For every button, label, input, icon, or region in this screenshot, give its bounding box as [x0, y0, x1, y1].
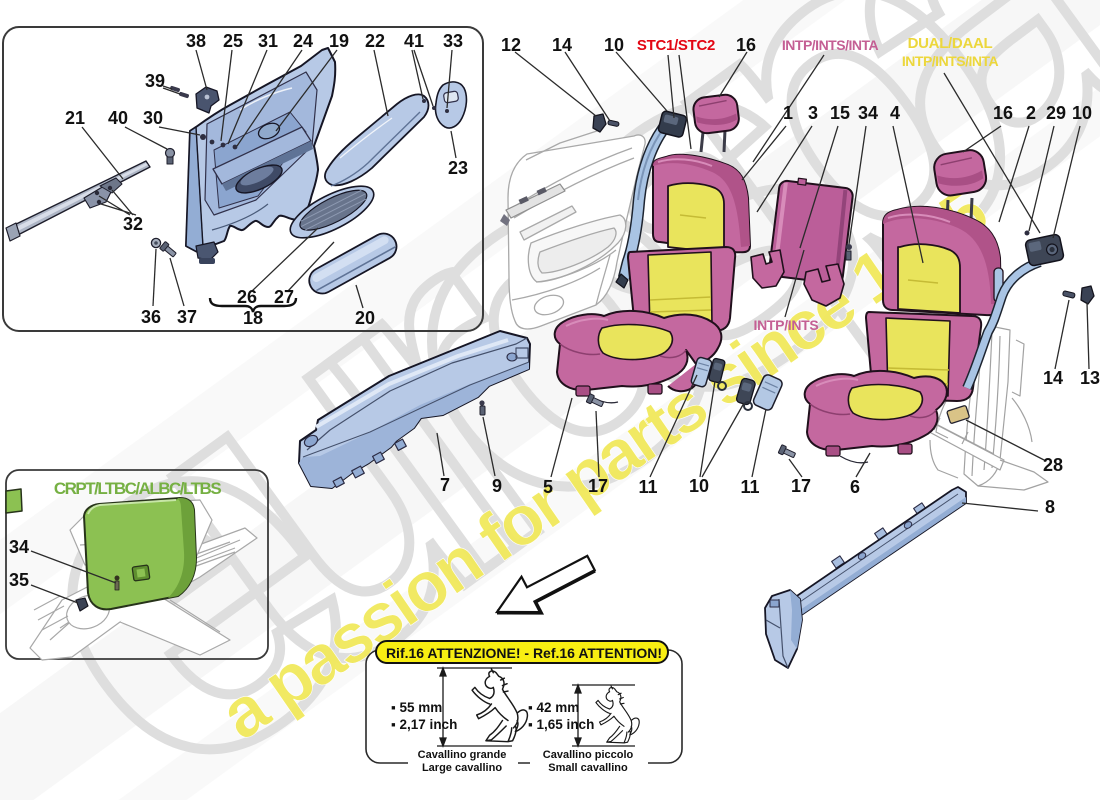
svg-text:17: 17: [791, 476, 811, 496]
svg-text:Small cavallino: Small cavallino: [548, 762, 628, 774]
svg-text:▪ 2,17 inch: ▪ 2,17 inch: [391, 717, 457, 732]
svg-text:17: 17: [588, 476, 608, 496]
svg-text:36: 36: [141, 307, 161, 327]
svg-text:1: 1: [783, 103, 793, 123]
svg-text:STC1/STC2: STC1/STC2: [637, 37, 715, 54]
svg-text:14: 14: [552, 35, 572, 55]
svg-text:41: 41: [404, 31, 424, 51]
svg-text:Cavallino grande: Cavallino grande: [418, 749, 507, 761]
svg-text:23: 23: [448, 158, 468, 178]
svg-text:24: 24: [293, 31, 313, 51]
svg-text:6: 6: [850, 477, 860, 497]
svg-text:39: 39: [145, 71, 165, 91]
svg-text:3: 3: [808, 103, 818, 123]
svg-text:31: 31: [258, 31, 278, 51]
svg-text:20: 20: [355, 308, 375, 328]
svg-text:INTP/INTS/INTA: INTP/INTS/INTA: [782, 37, 879, 53]
svg-text:19: 19: [329, 31, 349, 51]
svg-text:10: 10: [689, 476, 709, 496]
svg-text:▪ 42 mm: ▪ 42 mm: [528, 700, 579, 715]
svg-text:5: 5: [543, 477, 553, 497]
svg-text:34: 34: [858, 103, 878, 123]
svg-text:13: 13: [1080, 368, 1100, 388]
svg-text:▪ 55 mm: ▪ 55 mm: [391, 700, 442, 715]
svg-text:16: 16: [736, 35, 756, 55]
svg-text:9: 9: [492, 476, 502, 496]
svg-text:11: 11: [638, 477, 657, 497]
svg-text:16: 16: [993, 103, 1013, 123]
svg-text:25: 25: [223, 31, 243, 51]
svg-text:29: 29: [1046, 103, 1066, 123]
svg-text:8: 8: [1045, 497, 1055, 517]
svg-text:CRPT/LTBC/ALBC/LTBS: CRPT/LTBC/ALBC/LTBS: [54, 479, 222, 498]
svg-text:INTP/INTS/INTA: INTP/INTS/INTA: [902, 53, 999, 69]
svg-text:30: 30: [143, 108, 163, 128]
svg-text:27: 27: [274, 287, 294, 307]
svg-text:7: 7: [440, 475, 450, 495]
svg-text:34: 34: [9, 537, 29, 557]
svg-text:21: 21: [65, 108, 85, 128]
svg-text:12: 12: [501, 35, 521, 55]
svg-text:11: 11: [740, 477, 759, 497]
svg-text:40: 40: [108, 108, 128, 128]
svg-text:32: 32: [123, 214, 143, 234]
svg-text:DUAL/DAAL: DUAL/DAAL: [908, 35, 993, 52]
svg-text:15: 15: [830, 103, 850, 123]
svg-text:38: 38: [186, 31, 206, 51]
svg-text:10: 10: [1072, 103, 1092, 123]
svg-text:33: 33: [443, 31, 463, 51]
svg-text:28: 28: [1043, 455, 1063, 475]
svg-text:22: 22: [365, 31, 385, 51]
svg-text:37: 37: [177, 307, 197, 327]
svg-text:26: 26: [237, 287, 257, 307]
svg-text:2: 2: [1026, 103, 1036, 123]
svg-text:35: 35: [9, 570, 29, 590]
svg-text:18: 18: [243, 308, 263, 328]
svg-text:Rif.16 ATTENZIONE! - Ref.16 AT: Rif.16 ATTENZIONE! - Ref.16 ATTENTION!: [386, 645, 662, 661]
svg-text:Cavallino piccolo: Cavallino piccolo: [543, 749, 634, 761]
svg-text:INTP/INTS: INTP/INTS: [754, 317, 819, 333]
svg-text:4: 4: [890, 103, 900, 123]
svg-text:14: 14: [1043, 368, 1063, 388]
svg-text:▪ 1,65 inch: ▪ 1,65 inch: [528, 717, 594, 732]
svg-text:10: 10: [604, 35, 624, 55]
svg-text:Large cavallino: Large cavallino: [422, 762, 502, 774]
